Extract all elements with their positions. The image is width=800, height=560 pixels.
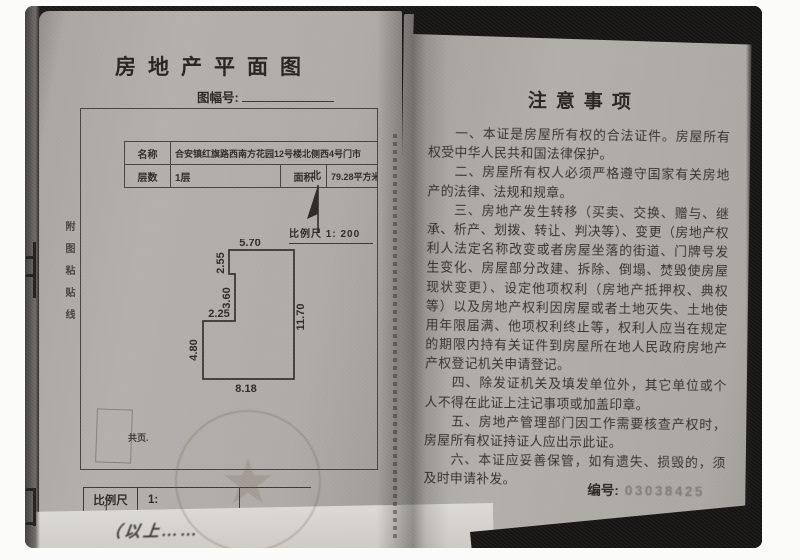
photo-of-open-booklet: 附图粘贴线 房地产平面图 图幅号: 名称 合安镇红旗路西南方花园12号楼北侧西4… — [25, 6, 762, 548]
dim-bottom: 8.18 — [235, 383, 256, 395]
scanned-property-certificate: 附图粘贴线 房地产平面图 图幅号: 名称 合安镇红旗路西南方花园12号楼北侧西4… — [0, 0, 800, 560]
name-value: 合安镇红旗路西南方花园12号楼北侧西4号门市 — [171, 142, 377, 164]
serial-value: 03038425 — [625, 483, 705, 499]
sheet-number-label: 图幅号: — [197, 91, 239, 105]
gutter-micro-text-column — [393, 134, 397, 538]
sheet-number-blank-line — [242, 90, 334, 102]
dim-left-upper: 2.55 — [215, 252, 227, 273]
floors-label: 层数 — [125, 165, 171, 187]
north-label: 北 — [299, 167, 333, 182]
note-paragraph-2: 二、房屋所有权人必须严格遵守国家有关房地产的法律、法规和规章。 — [427, 163, 730, 206]
dim-left-lower: 4.80 — [188, 339, 200, 360]
right-page-edge-shadow — [746, 6, 762, 548]
notes-body: 一、本证是房屋所有权的合法证件。房屋所有权受中华人民共和国法律保护。 二、房屋所… — [423, 124, 730, 493]
floors-value: 1层 — [171, 165, 281, 187]
pages-box-label: 共页. — [128, 431, 149, 444]
note-paragraph-3: 三、房地产发生转移（买卖、交换、赠与、继承、析产、划拨、转让、判决等）、变更（房… — [425, 201, 729, 378]
name-label: 名称 — [125, 142, 171, 164]
dim-left-middle: 3.60 — [221, 287, 233, 308]
spine-glyph-fragment — [26, 488, 38, 526]
table-row: 名称 合安镇红旗路西南方花园12号楼北侧西4号门市 — [125, 142, 377, 165]
table-row: 层数 1层 面积 79.28平方米 — [125, 165, 377, 188]
plan-frame: 名称 合安镇红旗路西南方花园12号楼北侧西4号门市 层数 1层 面积 79.28… — [80, 108, 378, 470]
serial-label: 编号: — [587, 483, 619, 498]
handwriting-note: （以上…… — [104, 517, 202, 543]
sheet-number-field: 图幅号: — [197, 87, 334, 106]
note-paragraph-4: 四、除发证机关及填发单位外，其它单位或个人不得在此证上注记事项或加盖印章。 — [424, 374, 727, 417]
note-paragraph-1: 一、本证是房屋所有权的合法证件。房屋所有权受中华人民共和国法律保护。 — [428, 124, 731, 167]
dim-top: 5.70 — [239, 239, 260, 249]
attachment-paste-line-label: 附图粘贴线 — [61, 221, 76, 331]
area-value: 79.28平方米 — [327, 165, 377, 187]
scale-row-label: 比例尺 — [84, 488, 138, 512]
dim-left-step: 2.25 — [208, 308, 229, 320]
serial-number-row: 编号:03038425 — [587, 479, 705, 501]
floor-plan-page: 附图粘贴线 房地产平面图 图幅号: 名称 合安镇红旗路西南方花园12号楼北侧西4… — [39, 11, 402, 530]
notes-page: 注意事项 一、本证是房屋所有权的合法证件。房屋所有权受中华人民共和国法律保护。 … — [397, 14, 752, 546]
page-title: 房地产平面图 — [99, 51, 329, 81]
floor-plan-drawing: 5.70 11.70 8.18 2.55 3.60 2.25 4.80 — [186, 239, 381, 469]
binding-gutter-shadow — [377, 6, 449, 548]
note-paragraph-5: 五、房地产管理部门因工作需要核查产权时，房屋所有权证持证人应出示此证。 — [424, 412, 727, 455]
notes-title: 注意事项 — [403, 84, 751, 116]
dim-right: 11.70 — [295, 304, 307, 331]
property-info-table: 名称 合安镇红旗路西南方花园12号楼北侧西4号门市 层数 1层 面积 79.28… — [124, 141, 378, 188]
spine-glyph-fragment — [26, 242, 38, 298]
